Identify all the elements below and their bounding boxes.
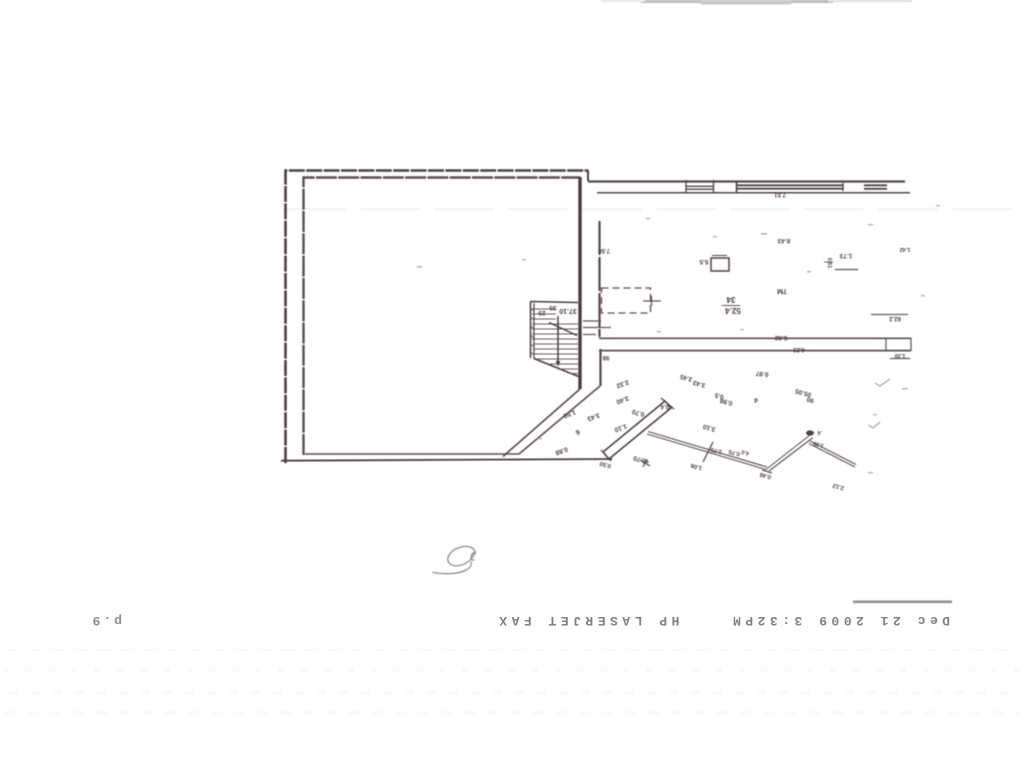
svg-text:1.50: 1.50 — [562, 408, 577, 419]
svg-text:0.51: 0.51 — [826, 258, 832, 269]
svg-text:0.4: 0.4 — [660, 403, 669, 409]
svg-text:0.98: 0.98 — [719, 396, 733, 406]
svg-text:2.12: 2.12 — [831, 481, 844, 490]
svg-text:8.43: 8.43 — [777, 237, 790, 244]
svg-text:37.10: 37.10 — [559, 307, 577, 314]
svg-text:5.5: 5.5 — [699, 258, 708, 265]
svg-text:0.97: 0.97 — [755, 369, 769, 377]
svg-text:3.43: 3.43 — [586, 411, 601, 422]
svg-text:1.30: 1.30 — [895, 352, 906, 358]
svg-text:3.45: 3.45 — [679, 372, 693, 382]
svg-text:6: 6 — [574, 428, 580, 436]
svg-text:7.51: 7.51 — [774, 191, 786, 197]
svg-text:4.0: 4.0 — [741, 448, 750, 456]
svg-text:2.32: 2.32 — [615, 378, 630, 389]
svg-text:3.40: 3.40 — [615, 394, 630, 405]
svg-text:1.06: 1.06 — [689, 461, 702, 470]
svg-text:3.10: 3.10 — [702, 422, 716, 432]
svg-text:34: 34 — [726, 295, 735, 304]
svg-text:7M: 7M — [777, 287, 787, 294]
svg-text:3.43: 3.43 — [692, 378, 706, 388]
svg-text:7.58: 7.58 — [598, 247, 610, 253]
svg-text:4: 4 — [754, 396, 759, 404]
svg-text:0.70: 0.70 — [631, 407, 645, 417]
svg-text:5.82: 5.82 — [774, 334, 787, 341]
svg-text:52.4: 52.4 — [725, 306, 741, 315]
svg-text:0.75: 0.75 — [727, 447, 740, 456]
svg-text:0.88: 0.88 — [554, 445, 569, 456]
svg-text:+0.70: +0.70 — [632, 454, 650, 465]
svg-text:1.42: 1.42 — [900, 246, 911, 252]
svg-text:1.05: 1.05 — [813, 440, 825, 449]
svg-text:.4: .4 — [817, 429, 823, 435]
svg-text:1.10: 1.10 — [613, 422, 628, 433]
svg-text:35: 35 — [549, 304, 557, 311]
svg-text:0.50: 0.50 — [598, 459, 611, 468]
svg-text:25: 25 — [538, 309, 546, 316]
svg-text:4.23: 4.23 — [793, 346, 805, 352]
svg-text:1.73: 1.73 — [839, 252, 852, 259]
svg-text:98: 98 — [602, 354, 609, 360]
svg-text:62.2: 62.2 — [889, 315, 901, 321]
